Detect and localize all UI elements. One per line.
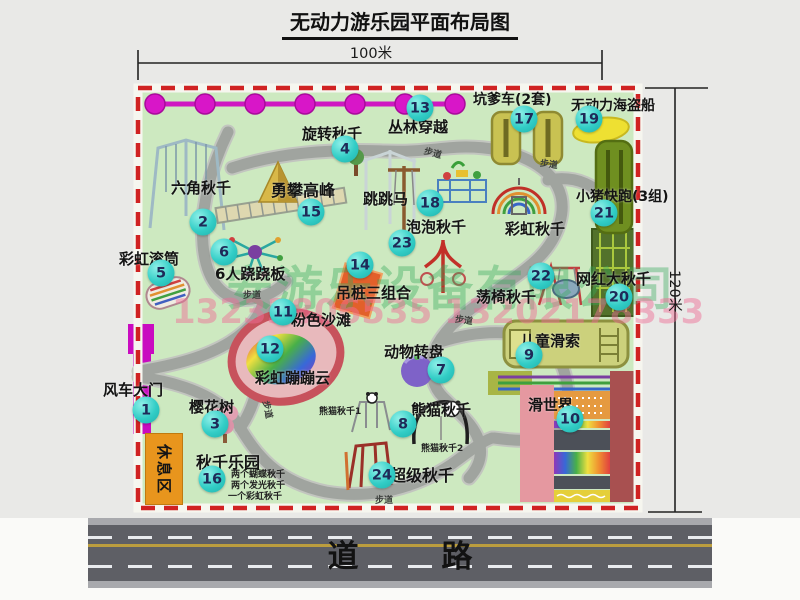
attraction-sublabel-8-2: 熊猫秋千2 (421, 441, 463, 454)
attraction-label-1: 风车大门 (103, 379, 163, 400)
attraction-label-23: 泡泡秋千 (406, 216, 466, 237)
page-title: 无动力游乐园平面布局图 (282, 6, 518, 40)
walkway-label: 步道 (539, 156, 559, 171)
attraction-sublabel-16-3: 一个彩虹秋千 (228, 489, 282, 502)
attraction-label-8: 熊猫秋千 (411, 399, 471, 420)
rest-area-label: 休息区 (154, 443, 175, 494)
park-map-page: 无动力游乐园平面布局图 100米 120米 (0, 0, 800, 600)
attraction-label-18: 跳跳马 (363, 188, 408, 209)
road-label-wrap: 道 路 (88, 525, 712, 581)
attraction-badge-21: 21 (591, 200, 618, 227)
attraction-badge-4: 4 (332, 136, 359, 163)
road-curb-top (88, 518, 712, 525)
bottom-margin (0, 588, 800, 600)
width-dimension-label: 100米 (338, 42, 404, 63)
attraction-badge-2: 2 (190, 209, 217, 236)
road-curb-bottom (88, 581, 712, 588)
walkway-label: 步道 (243, 288, 261, 301)
walkway-label: 步道 (375, 493, 393, 506)
attraction-badge-9: 9 (516, 342, 543, 369)
attraction-badge-7: 7 (428, 357, 455, 384)
attraction-badge-18: 18 (417, 190, 444, 217)
attraction-badge-24: 24 (369, 462, 396, 489)
height-dimension-label: 120米 (664, 270, 685, 312)
attraction-badge-5: 5 (148, 260, 175, 287)
attraction-badge-22: 22 (528, 263, 555, 290)
attraction-badge-6: 6 (211, 239, 238, 266)
attraction-label-6: 6人跷跷板 (215, 263, 285, 284)
attraction-badge-23: 23 (389, 230, 416, 257)
attraction-badge-19: 19 (576, 106, 603, 133)
attraction-badge-12: 12 (257, 336, 284, 363)
attraction-badge-17: 17 (511, 106, 538, 133)
attraction-badge-16: 16 (199, 466, 226, 493)
attraction-badge-1: 1 (133, 397, 160, 424)
attraction-label-15: 勇攀高峰 (271, 177, 335, 201)
attraction-badge-3: 3 (202, 411, 229, 438)
attraction-badge-14: 14 (347, 252, 374, 279)
attraction-label-11: 粉色沙滩 (291, 309, 351, 330)
attraction-badge-15: 15 (298, 199, 325, 226)
attraction-label-22: 荡椅秋千 (476, 286, 536, 307)
attraction-badge-8: 8 (390, 411, 417, 438)
attraction-sublabel-8-1: 熊猫秋千1 (319, 404, 361, 417)
attraction-badge-20: 20 (606, 284, 633, 311)
attraction-label-rainbow: 彩虹秋千 (505, 218, 565, 239)
walkway-label: 步道 (454, 312, 474, 327)
attraction-label-12: 彩虹蹦蹦云 (255, 367, 330, 388)
attraction-badge-11: 11 (270, 299, 297, 326)
attraction-label-17: 坑爹车(2套) (473, 89, 552, 109)
attraction-badge-13: 13 (407, 95, 434, 122)
road: 道 路 (88, 518, 712, 588)
attraction-label-2: 六角秋千 (171, 177, 231, 198)
attraction-label-14: 吊桩三组合 (336, 282, 411, 303)
attraction-label-21: 小猪快跑(3组) (576, 186, 669, 206)
attraction-badge-10: 10 (557, 406, 584, 433)
attraction-label-24: 超级秋千 (390, 462, 454, 486)
road-label: 道 路 (328, 531, 509, 576)
rest-area: 休息区 (145, 433, 183, 505)
